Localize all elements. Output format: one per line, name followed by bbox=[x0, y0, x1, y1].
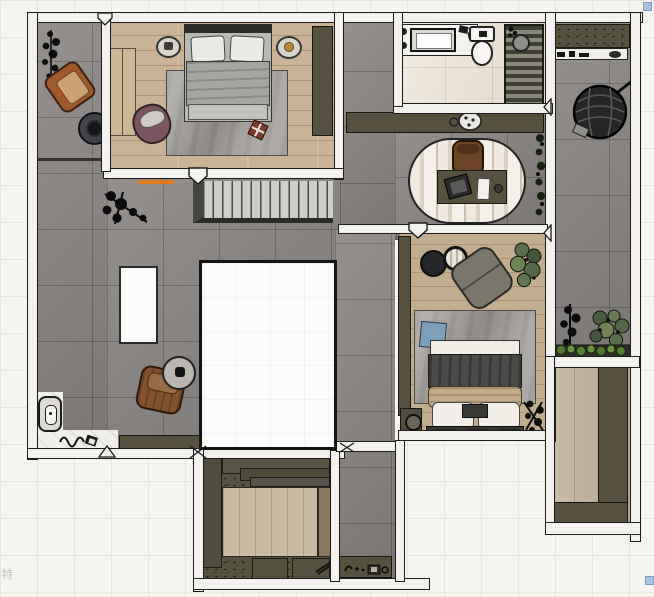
console-items-icon bbox=[339, 557, 393, 579]
floor-plan-canvas: 特 bbox=[0, 0, 654, 597]
notepad-icon bbox=[476, 178, 490, 201]
watermark-text: 特 bbox=[2, 566, 13, 582]
shower-plant-icon bbox=[505, 24, 521, 40]
wall-closet-left bbox=[193, 448, 204, 592]
door-marker-terrace-icon bbox=[97, 12, 113, 26]
door-marker-entry-icon bbox=[98, 444, 116, 458]
wall-balcony-bottom bbox=[548, 356, 640, 368]
closet-bottom-cabinet-1 bbox=[252, 558, 288, 580]
stairs bbox=[193, 181, 333, 223]
door-cross-marker-icon bbox=[188, 444, 208, 460]
pillow-right bbox=[229, 35, 264, 63]
hanging-egg-chair-icon bbox=[566, 74, 638, 144]
wall-closet-right bbox=[330, 450, 340, 582]
closet-left-column bbox=[202, 458, 222, 568]
nightstand-left-lamp bbox=[164, 42, 173, 50]
wall-study-bottom bbox=[338, 224, 548, 234]
wall-bedroom-bottom bbox=[103, 168, 344, 179]
laundry-cabinet-column bbox=[598, 367, 628, 507]
door-cross-corridor-icon bbox=[338, 441, 356, 454]
floor-corridor-south bbox=[335, 230, 395, 580]
wall-terrace-divider bbox=[101, 12, 111, 172]
toilet-bowl bbox=[471, 40, 493, 66]
pillow-left bbox=[190, 35, 225, 63]
door-marker-stairs-icon bbox=[188, 167, 208, 185]
door-marker-bedroom2-icon bbox=[408, 222, 428, 239]
potted-plant-icon bbox=[504, 238, 548, 294]
wall-bathroom-left bbox=[393, 12, 403, 107]
hall-plant-icon bbox=[95, 180, 159, 232]
entry-wall-fixture bbox=[38, 396, 62, 432]
vanity-sink bbox=[410, 28, 456, 52]
bed-foot-throw bbox=[188, 104, 268, 120]
laundry-cabinet-row bbox=[552, 502, 628, 524]
secondary-wardrobe bbox=[398, 236, 411, 416]
selection-handle-top[interactable] bbox=[643, 2, 652, 11]
wall-laundry-bottom bbox=[545, 522, 641, 535]
bed2-dark-cushion bbox=[462, 404, 488, 418]
wall-bathroom-bottom bbox=[393, 103, 553, 114]
desk-bowl-icon bbox=[494, 184, 503, 193]
window-notch-balcony-2-icon bbox=[538, 224, 552, 242]
skylight-opening bbox=[119, 266, 158, 344]
floor-opening-void bbox=[199, 260, 337, 450]
wall-bedroom2-bottom bbox=[398, 430, 550, 441]
selection-handle-bottom[interactable] bbox=[645, 576, 654, 585]
wall-bedroom-right bbox=[334, 12, 344, 180]
wall-laundry-left bbox=[545, 356, 555, 534]
nightstand-right-lamp bbox=[284, 42, 294, 52]
balcony-shelf bbox=[552, 48, 628, 60]
corridor-console bbox=[338, 556, 392, 578]
window-notch-balcony-icon bbox=[538, 98, 552, 116]
wall-corridor-right bbox=[395, 440, 405, 582]
threshold-strip bbox=[138, 180, 174, 184]
balcony-top-planter bbox=[552, 24, 630, 48]
hall-side-table bbox=[162, 356, 196, 390]
bed2-dark-duvet bbox=[428, 354, 522, 388]
wall-outer-left bbox=[27, 12, 38, 460]
wall-outer-right bbox=[630, 12, 641, 542]
master-bed-headboard bbox=[184, 24, 272, 33]
nightstand-secondary bbox=[400, 408, 422, 432]
closet-top-shelf-3 bbox=[250, 477, 330, 487]
duvet bbox=[186, 61, 270, 106]
hall-sideboard bbox=[346, 112, 544, 133]
terrace-railing bbox=[33, 158, 105, 161]
closet-wood-floor bbox=[222, 487, 318, 557]
master-wardrobe bbox=[312, 26, 333, 136]
